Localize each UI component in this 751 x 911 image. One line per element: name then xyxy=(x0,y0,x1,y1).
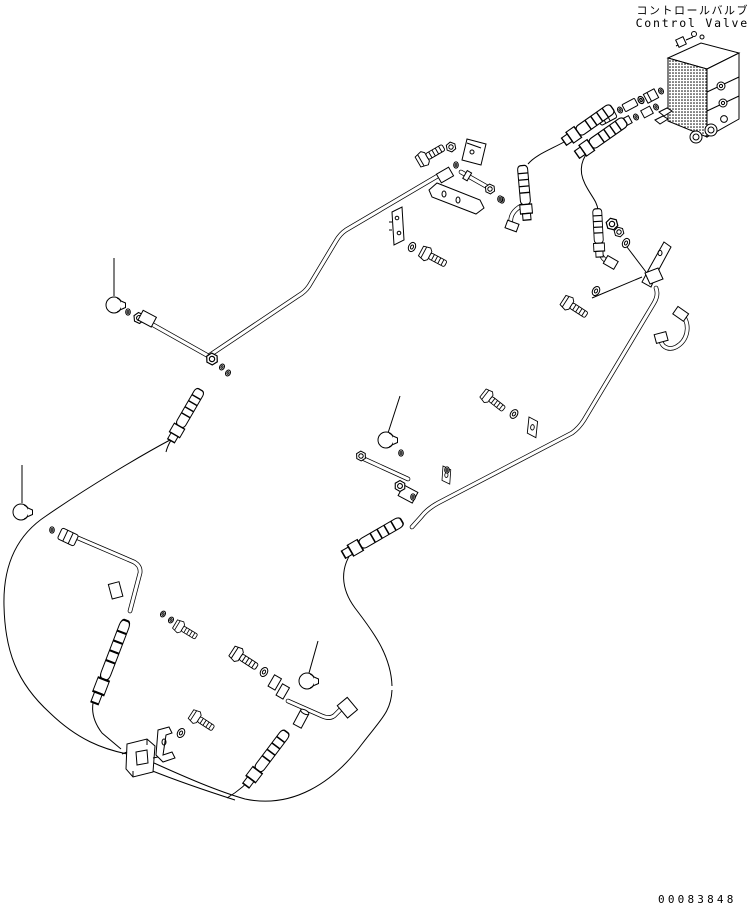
diagram-canvas xyxy=(0,0,751,911)
pipe-oring xyxy=(445,467,450,473)
tube-washer-1 xyxy=(159,610,166,618)
right-mounting-bracket xyxy=(642,242,671,287)
bottom-bolt-2-washer xyxy=(259,666,270,678)
hook-hose xyxy=(654,306,688,348)
elbow-assembly-parts xyxy=(241,673,357,789)
double-clamp-block xyxy=(122,739,158,777)
tee-connector-cluster xyxy=(340,432,417,560)
bottom-clamp-halves xyxy=(268,675,289,699)
center-bolt-washer xyxy=(508,408,519,420)
upper-left-plug-chain xyxy=(106,297,231,444)
lever-nut xyxy=(445,141,457,153)
lower-left-tube xyxy=(78,538,140,611)
upper-clamp-bolt xyxy=(418,245,449,271)
u-bracket-washer xyxy=(176,727,187,739)
bottom-bolt-1 xyxy=(172,619,200,643)
elbow-tube-assembly xyxy=(288,701,344,718)
right-pipe xyxy=(412,288,657,527)
drawing-number: 00083848 xyxy=(658,893,737,906)
center-bolt xyxy=(479,388,508,415)
u-clamp-bracket xyxy=(156,727,175,762)
bracket-bolt xyxy=(559,294,590,321)
title-english: Control Valve xyxy=(636,16,749,30)
bottom-bolt-2 xyxy=(228,645,261,674)
left-sweep-hose xyxy=(4,440,392,801)
pipe-clamp-plate-upper xyxy=(389,207,404,245)
tee-connector-tube xyxy=(362,458,408,479)
control-valve-block xyxy=(655,32,739,144)
upper-clamp-washer xyxy=(407,241,417,253)
upper-left-pipe xyxy=(148,174,441,358)
lever-bolt xyxy=(414,141,447,169)
u-bracket-bolt xyxy=(187,708,217,734)
lower-left-plug-chain xyxy=(13,504,132,705)
center-clamp-plate xyxy=(527,417,538,438)
elbow-fitting-a xyxy=(505,206,521,232)
s-curve-hose xyxy=(344,549,392,686)
tube-washer-2 xyxy=(167,616,174,624)
parts-diagram-page: コントロールバルブ Control Valve 00083848 xyxy=(0,0,751,911)
vertical-crimp-tube-b xyxy=(592,208,605,257)
tube-clamp xyxy=(108,582,123,599)
bracket-nuts xyxy=(605,217,631,248)
